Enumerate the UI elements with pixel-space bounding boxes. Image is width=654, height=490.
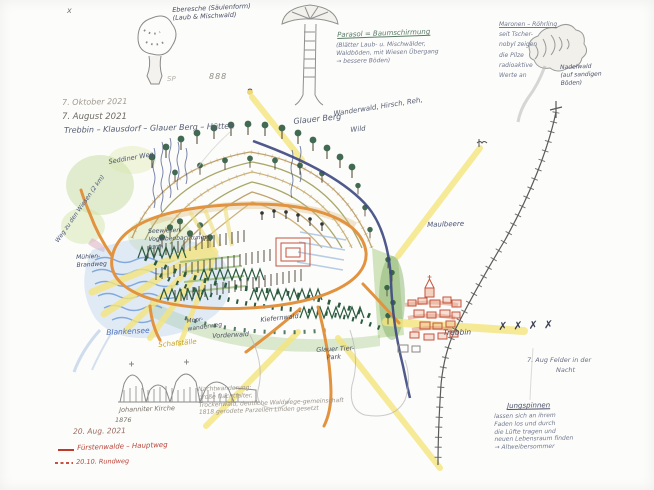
x-marks: ✗✗✗✗ bbox=[498, 318, 559, 334]
date-aug-20: 20. Aug. 2021 bbox=[73, 426, 126, 437]
faint-mark-888: 888 bbox=[209, 72, 227, 82]
label-maulbeere: Maulbeere bbox=[427, 220, 464, 230]
jungspinnen-title: Jungspinnen bbox=[507, 401, 550, 411]
town-trebbin bbox=[398, 275, 461, 352]
nadelwald-note: Nadelwald(auf sandigenBöden) bbox=[560, 63, 602, 88]
jungspinnen-note: lassen sich an ihremFaden los und durchd… bbox=[494, 412, 574, 452]
parasol-note: (Blätter Laub- u. Mischwälder,Waldböden,… bbox=[336, 40, 439, 65]
parasol-tree-sketch bbox=[282, 5, 338, 105]
rowan-tree-sketch bbox=[138, 16, 176, 84]
felder-note-2: Nacht bbox=[556, 366, 575, 374]
label-tal: Tal bbox=[203, 235, 212, 243]
kirche-year: 1876 bbox=[115, 416, 132, 424]
church-icon bbox=[425, 275, 434, 297]
label-trebbin: Trebbin bbox=[443, 328, 471, 338]
sketchbook-page: x SP 888 7. Oktober 2021 7. August 2021 … bbox=[0, 0, 654, 490]
label-glauer-park: Glauer Tier-Park bbox=[316, 344, 355, 363]
corner-mark: x bbox=[67, 6, 72, 16]
date-august: 7. August 2021 bbox=[62, 112, 127, 123]
date-october: 7. Oktober 2021 bbox=[62, 97, 127, 109]
label-seewiesen: SeewiesenVogelbeobachtungs-turm bbox=[148, 226, 210, 252]
felder-note-1: 7. Aug Felder in der bbox=[527, 356, 591, 364]
faint-mark-sp: SP bbox=[167, 75, 176, 84]
label-muehlen: Mühlen-Brandweg bbox=[76, 252, 107, 269]
legend-marks bbox=[55, 450, 74, 463]
label-glauer-sub2: Wild bbox=[350, 124, 366, 135]
legend-dashed-label: 20.10. Rundweg bbox=[76, 457, 129, 466]
night-notes: Nachtwanderung:große Nachtfalter,Trocken… bbox=[198, 381, 344, 417]
maronen-note: Maronen – Röhrlingseit Tscher-nobyl zeig… bbox=[499, 20, 557, 81]
